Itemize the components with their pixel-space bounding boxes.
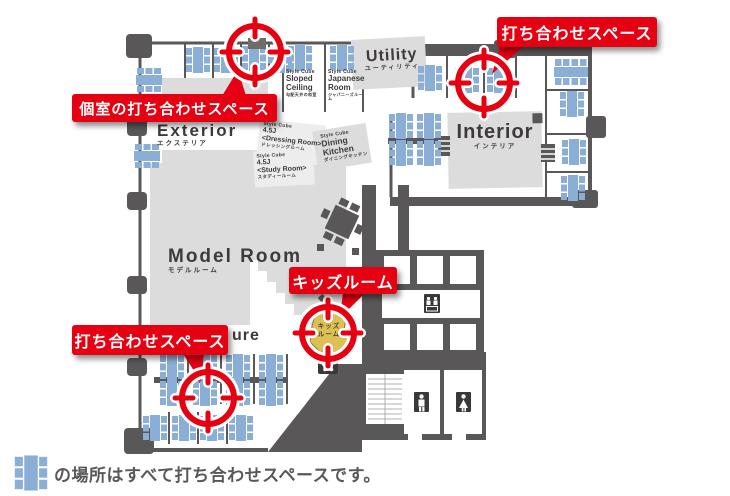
room-label-interior: Interior インテリア (448, 122, 542, 151)
floor-map: Utility ユーティリティ Exterior エクステリア Interior… (0, 0, 730, 496)
room-card-japanese-room: Style Cube Japanese Room ジャパニーズルーム (328, 70, 364, 101)
floor-plan-drawing (0, 0, 730, 496)
tables-right-rooms (560, 91, 586, 201)
womens-restroom-icon (456, 392, 471, 412)
room-card-study-room: Style Cube 4.5J <Study Room> スタディールーム (256, 151, 315, 180)
zone-model-room (150, 163, 346, 325)
callout-meeting-space-top: 打ち合わせスペース (497, 17, 657, 47)
room-label-model-room: Model Room モデルルーム (168, 247, 302, 275)
caption-text: の場所はすべて打ち合わせスペースです。 (54, 461, 381, 486)
connector-right (541, 144, 555, 162)
caption-bar: の場所はすべて打ち合わせスペースです。 (14, 453, 381, 493)
stairs (366, 374, 404, 424)
room-furniture (288, 45, 354, 71)
callout-kids-room: キッズルーム (289, 267, 397, 294)
elevator-hall (376, 250, 484, 352)
callout-meeting-space-bottom: 打ち合わせスペース (72, 325, 228, 355)
room-label-exterior: Exterior エクステリア (157, 122, 237, 148)
table-icon (14, 453, 48, 493)
restroom-block (362, 352, 486, 440)
room-card-sloped-ceiling: Style Cube Sloped Ceiling 勾配天井の和室 (286, 70, 324, 97)
elevator-icon (424, 294, 440, 313)
callout-private-meeting-space: 個室の打ち合わせスペース (72, 94, 277, 122)
room-label-furniture: ure (232, 328, 260, 344)
room-label-utility: Utility ユーティリティ (357, 46, 426, 74)
kids-room-label: キッズ ルーム (313, 323, 345, 339)
mens-restroom-icon (414, 392, 429, 412)
